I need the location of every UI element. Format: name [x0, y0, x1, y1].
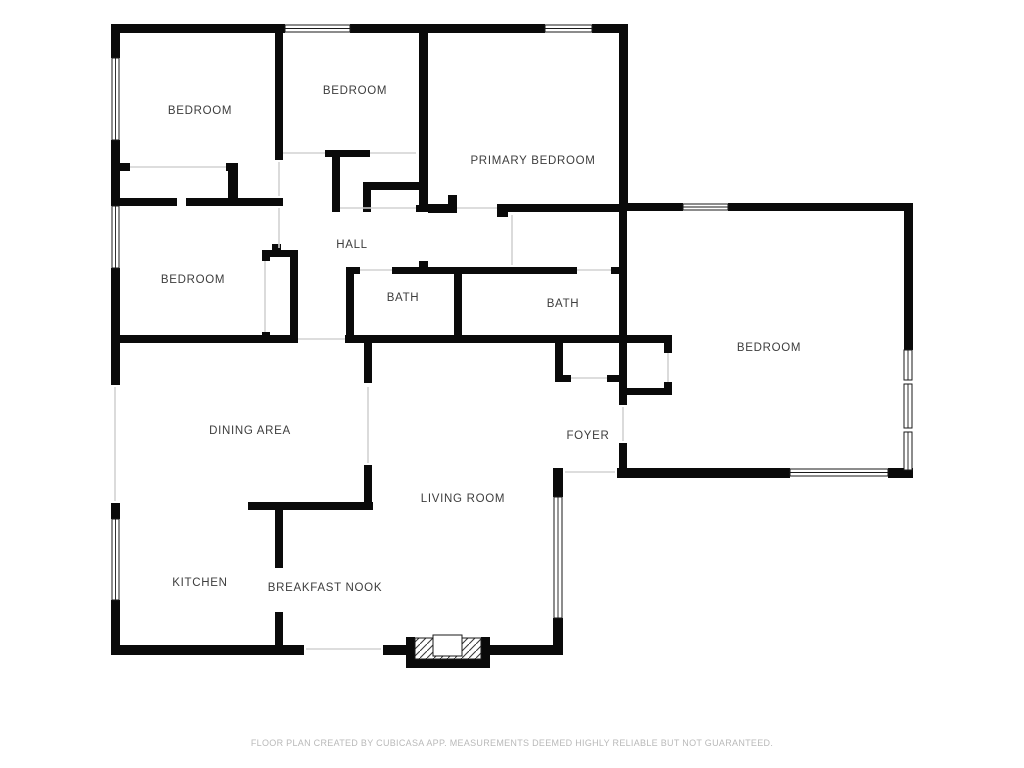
floor-plan-page: BEDROOMBEDROOMPRIMARY BEDROOMBEDROOMHALL…: [0, 0, 1024, 768]
room-label-bedroom-3: BEDROOM: [161, 274, 225, 286]
room-label-foyer: FOYER: [566, 430, 609, 442]
window: [904, 350, 912, 380]
window: [904, 384, 912, 428]
wall: [497, 204, 627, 212]
room-label-primary-bedroom: PRIMARY BEDROOM: [470, 155, 595, 167]
window: [790, 469, 888, 476]
room-label-living-room: LIVING ROOM: [421, 493, 505, 505]
wall: [416, 205, 428, 212]
room-label-bath-2: BATH: [547, 298, 580, 310]
wall: [664, 343, 672, 353]
wall: [454, 267, 462, 343]
openings-layer: [115, 153, 668, 649]
wall: [428, 204, 457, 213]
wall: [111, 268, 120, 385]
wall: [332, 205, 340, 212]
wall: [111, 503, 120, 519]
window: [112, 206, 119, 268]
window: [112, 58, 119, 140]
room-label-dining-area: DINING AREA: [209, 425, 291, 437]
wall: [488, 645, 563, 655]
wall: [392, 267, 462, 274]
wall: [111, 24, 120, 58]
wall: [406, 659, 490, 668]
wall: [419, 261, 428, 268]
wall: [611, 267, 620, 274]
wall: [111, 198, 177, 206]
window: [545, 25, 592, 32]
window: [285, 25, 350, 32]
wall: [346, 267, 360, 274]
room-label-breakfast-nook: BREAKFAST NOOK: [268, 582, 382, 594]
footer-layer: FLOOR PLAN CREATED BY CUBICASA APP. MEAS…: [251, 738, 773, 748]
wall: [275, 612, 283, 648]
wall: [617, 468, 790, 478]
wall: [364, 343, 372, 383]
wall: [619, 203, 627, 405]
wall: [364, 465, 372, 505]
wall: [111, 335, 298, 343]
room-label-kitchen: KITCHEN: [172, 577, 227, 589]
wall: [619, 24, 628, 203]
wall: [111, 163, 130, 171]
window: [904, 432, 912, 470]
disclaimer-text: FLOOR PLAN CREATED BY CUBICASA APP. MEAS…: [251, 738, 773, 748]
wall: [186, 198, 283, 206]
wall: [664, 382, 672, 395]
entry-doorstep: [433, 635, 462, 656]
wall: [904, 203, 913, 350]
wall: [350, 24, 545, 33]
wall: [553, 468, 563, 497]
wall: [275, 24, 283, 160]
wall: [112, 24, 285, 33]
floor-plan-drawing: BEDROOMBEDROOMPRIMARY BEDROOMBEDROOMHALL…: [0, 0, 1024, 768]
room-label-bath-1: BATH: [387, 292, 420, 304]
wall: [497, 204, 508, 217]
wall: [454, 267, 577, 274]
wall: [363, 182, 422, 190]
wall: [728, 203, 913, 211]
wall: [262, 250, 270, 261]
window: [112, 519, 119, 600]
wall: [607, 375, 619, 382]
room-label-bedroom-2: BEDROOM: [323, 85, 387, 97]
window: [683, 204, 728, 210]
entry-layer: [415, 635, 481, 659]
window: [554, 497, 562, 618]
room-label-hall: HALL: [336, 239, 368, 251]
wall: [248, 502, 373, 510]
wall: [553, 618, 563, 655]
room-label-bedroom-1: BEDROOM: [168, 105, 232, 117]
wall: [290, 250, 298, 343]
wall: [111, 140, 120, 206]
room-label-bedroom-4: BEDROOM: [737, 342, 801, 354]
wall: [620, 203, 683, 211]
wall: [383, 645, 410, 655]
wall: [346, 267, 354, 343]
wall: [419, 24, 428, 212]
wall: [555, 375, 571, 382]
wall: [332, 150, 340, 212]
wall: [275, 502, 283, 568]
wall: [325, 150, 370, 157]
